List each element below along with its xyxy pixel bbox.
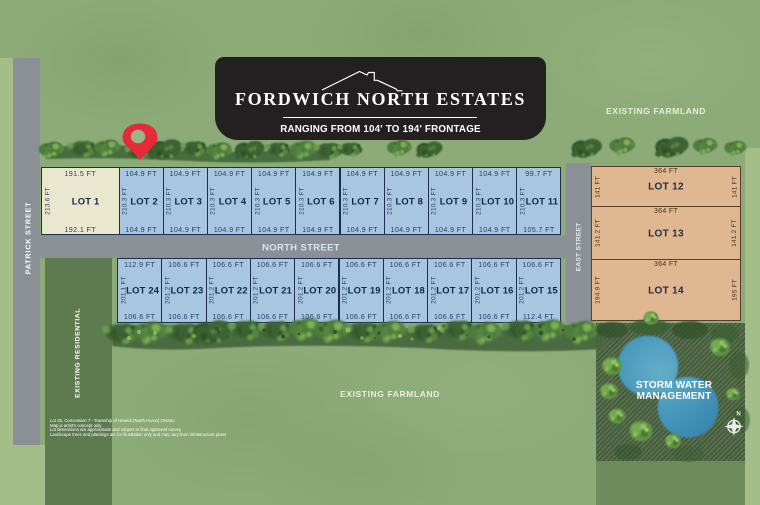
svg-text:N: N bbox=[736, 412, 740, 418]
